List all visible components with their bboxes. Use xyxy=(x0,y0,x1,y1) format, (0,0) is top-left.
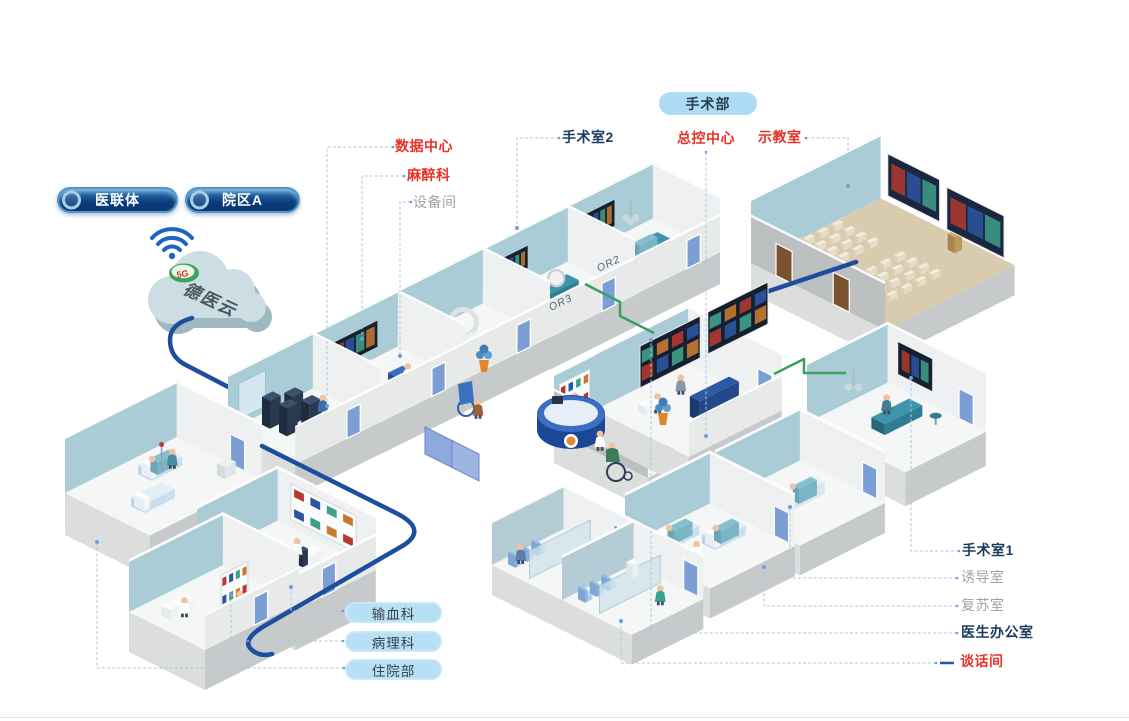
label-talk-room: 谈话间 xyxy=(960,653,1004,669)
hospital-isometric-diagram: OR3 OR2 德医云 5G 医联体 院区A 手术部 输血科 病理科 住院部 数… xyxy=(0,0,1129,721)
page-bottom-rule xyxy=(0,717,1129,718)
label-anesthesiology: 麻醉科 xyxy=(407,167,451,183)
label-doctor-office: 医生办公室 xyxy=(961,624,1034,640)
label-induction-room: 诱导室 xyxy=(961,569,1005,585)
label-demo-classroom: 示教室 xyxy=(758,129,802,145)
label-operating-room-1: 手术室1 xyxy=(962,542,1014,558)
isometric-scene xyxy=(65,133,1015,690)
consortium-pill-button[interactable]: 医联体 xyxy=(57,187,178,213)
blood-transfusion-tag: 输血科 xyxy=(345,602,442,623)
label-operating-room-2: 手术室2 xyxy=(562,129,614,145)
medical-cloud-icon xyxy=(148,229,272,334)
surgery-dept-tag: 手术部 xyxy=(659,92,757,115)
cloud-5g-badge-text: 5G xyxy=(176,268,189,280)
scene-svg: OR3 OR2 德医云 5G xyxy=(0,0,1129,721)
label-recovery-room: 复苏室 xyxy=(961,597,1005,613)
label-data-center: 数据中心 xyxy=(395,138,453,154)
label-master-control: 总控中心 xyxy=(677,130,735,146)
campus-a-pill-button[interactable]: 院区A xyxy=(185,187,300,213)
label-equipment-room: 设备间 xyxy=(413,194,457,210)
inpatient-tag: 住院部 xyxy=(345,659,442,680)
pathology-tag: 病理科 xyxy=(345,631,442,652)
